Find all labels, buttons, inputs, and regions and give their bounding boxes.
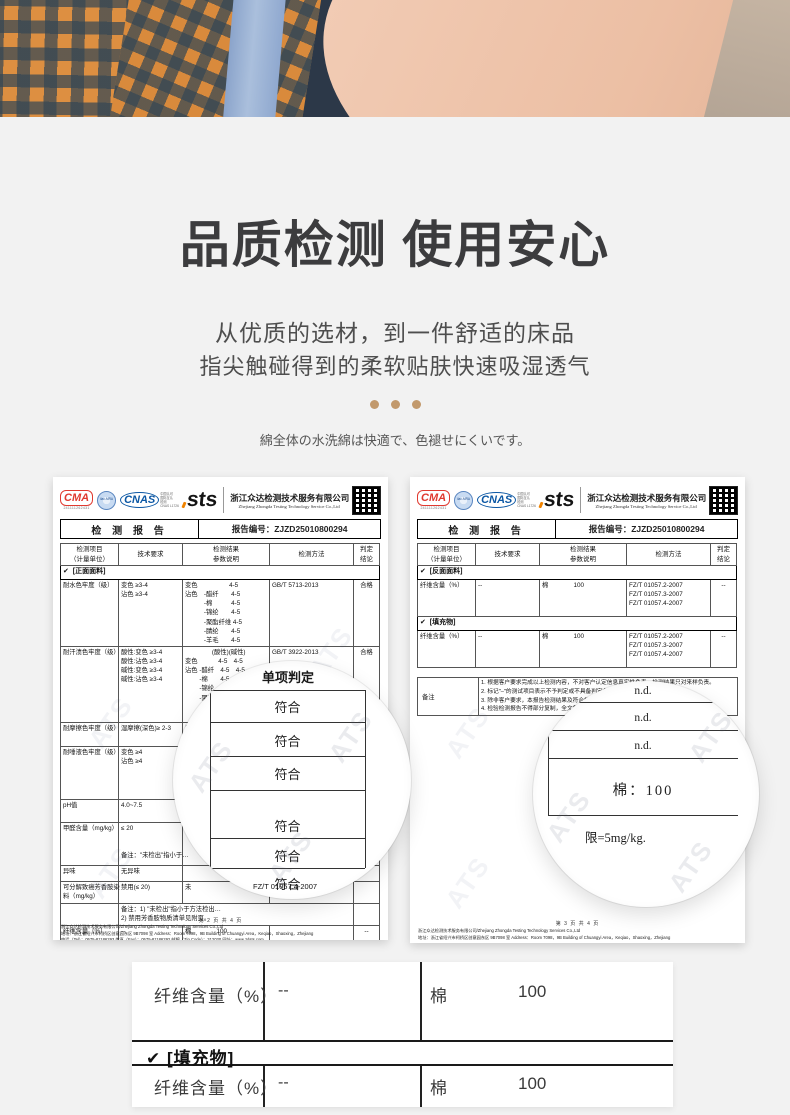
- tech-requirement-value: --: [278, 1074, 289, 1092]
- table-line: [132, 1040, 673, 1042]
- divider: [580, 487, 581, 513]
- fiber-content-label: 纤维含量（%）: [154, 982, 278, 1007]
- blue-fabric: [222, 0, 287, 117]
- section-label: ✔ [填充物]: [418, 617, 737, 631]
- japanese-note: 綿全体の水洗綿は快適で、色褪せにくいです。: [0, 430, 790, 449]
- subtitle-line2: 指尖触碰得到的柔软贴肤快速吸湿透气: [0, 349, 790, 381]
- table-cell: 耐水色牢度（级）: [61, 580, 119, 647]
- verdict-value: 符合: [210, 731, 365, 750]
- table-cell: 耐汗渍色牢度（级）: [61, 646, 119, 722]
- table-line: [210, 722, 365, 723]
- table-cell: 无异味: [119, 865, 183, 881]
- divider: [223, 487, 224, 513]
- test-results-table: 检测项目 （计量单位）技术要求检测结果 参数说明检测方法判定 结论✔ [反面面料…: [417, 543, 737, 668]
- ilac-mra-logo: ilac-MRA: [97, 491, 116, 510]
- table-cell: 纤维含量（%）: [418, 631, 476, 668]
- sts-logo: sts: [539, 488, 576, 512]
- column-header: 技术要求: [476, 544, 540, 566]
- table-cell: 棉 100: [540, 580, 627, 617]
- column-header: 技术要求: [119, 544, 183, 566]
- table-cell: 变色 4-5 沾色 -醋纤 4-5 -棉 4-5 -锦纶 4-5 -聚酯纤维 4…: [183, 580, 270, 647]
- table-cell: 湿摩擦(深色)≥ 2-3: [119, 722, 183, 746]
- column-header: 检测方法: [627, 544, 711, 566]
- table-cell: 禁用(≤ 20): [119, 881, 183, 903]
- table-line: [210, 756, 365, 757]
- qr-code: [352, 486, 381, 515]
- report-header-bar: 检 测 报 告 报告编号：ZJZD25010800294: [417, 519, 738, 539]
- table-cell: 纤维含量（%）: [418, 580, 476, 617]
- table-cell: FZ/T 01057.2-2007 FZ/T 01057.3-2007 FZ/T…: [627, 580, 711, 617]
- table-line: [420, 962, 422, 1040]
- verdict-value: 符合: [210, 697, 365, 716]
- table-cell: GB/T 5713-2013: [270, 580, 354, 647]
- company-name: 浙江众达检测技术服务有限公司 Zhejiang Zhongda Testing …: [587, 492, 705, 509]
- table-line: [210, 868, 365, 869]
- verdict-cell: --: [711, 631, 737, 668]
- column-header: 判定 结论: [354, 544, 380, 566]
- cma-logo: CMA 241111262431: [417, 490, 450, 510]
- remarks-label: 备注: [418, 678, 479, 715]
- fiber-value: 100: [518, 982, 546, 1002]
- table-line: [548, 702, 738, 703]
- verdict-value: 符合: [210, 846, 365, 865]
- table-cell: 棉 100: [540, 631, 627, 668]
- column-header: 检测结果 参数说明: [183, 544, 270, 566]
- table-cell: 甲醛含量（mg/kg）: [61, 822, 119, 865]
- table-cell: FZ/T 01057.2-2007 FZ/T 01057.3-2007 FZ/T…: [627, 631, 711, 668]
- table-row: 纤维含量（%）--棉 100FZ/T 01057.2-2007 FZ/T 010…: [418, 631, 737, 668]
- table-cell: pH值: [61, 799, 119, 822]
- section-label: ✔ [反面面料]: [418, 566, 737, 580]
- report-header-bar: 检 测 报 告 报告编号：ZJZD25010800294: [60, 519, 381, 539]
- magnifier-circle-right: n.d.n.d.n.d.棉：100 限=5mg/kg. ATS ATS ATS: [533, 681, 759, 907]
- table-cell: 异味: [61, 865, 119, 881]
- table-row: 耐水色牢度（级）变色 ≥3-4 沾色 ≥3-4变色 4-5 沾色 -醋纤 4-5…: [61, 580, 380, 647]
- cma-logo: CMA 241111262431: [60, 490, 93, 510]
- column-header: 检测项目 （计量单位）: [418, 544, 476, 566]
- dot-icon: [370, 400, 379, 409]
- table-cell: ≤ 20 备注："未检出"指小于…: [119, 822, 183, 865]
- table-line: [210, 790, 365, 791]
- cnas-logo: CNAS 中国认可 国际互认 检测 CNAS L1726: [120, 492, 179, 508]
- section-label: ✔ [正面面料]: [61, 566, 380, 580]
- plaid-fabric-fold: [101, 0, 325, 117]
- table-cell: --: [476, 631, 540, 668]
- zoomed-table-card: 纤维含量（%） -- 棉 100 ✔ [填充物] 纤维含量（%） -- 棉 10…: [132, 962, 673, 1107]
- table-cell: 耐唾液色牢度（级）: [61, 746, 119, 799]
- table-row: 纤维含量（%）--棉 100FZ/T 01057.2-2007 FZ/T 010…: [418, 580, 737, 617]
- table-line: [210, 690, 365, 691]
- table-line: [420, 1064, 422, 1107]
- table-line: [548, 730, 738, 731]
- table-cell: 耐摩擦色牢度（级）: [61, 722, 119, 746]
- table-cell: 变色 ≥3-4 沾色 ≥3-4: [119, 580, 183, 647]
- divider-dots: [0, 396, 790, 414]
- table-cell: 酸性:变色 ≥3-4 酸性:沾色 ≥3-4 碱性:变色 ≥3-4 碱性:沾色 ≥…: [119, 646, 183, 722]
- company-name: 浙江众达检测技术服务有限公司 Zhejiang Zhongda Testing …: [230, 492, 348, 509]
- magnified-method: FZ/T 01057.4-2007: [253, 882, 317, 891]
- verdict-value: 符合: [210, 816, 365, 835]
- magnifier-circle-left: 单项判定 符合符合符合符合符合符合 FZ/T 01057.4-2007 ATS …: [173, 661, 411, 899]
- table-row: ✔ [正面面料]: [61, 566, 380, 580]
- table-header-row: 检测项目 （计量单位）技术要求检测结果 参数说明检测方法判定 结论: [418, 544, 737, 566]
- table-header-row: 检测项目 （计量单位）技术要求检测结果 参数说明检测方法判定 结论: [61, 544, 380, 566]
- table-line: [210, 838, 365, 839]
- sts-logo: sts: [182, 488, 219, 512]
- result-value: n.d.: [548, 712, 738, 724]
- subtitle-line1: 从优质的选材，到一件舒适的床品: [0, 314, 790, 348]
- page-title: 品质检测 使用安心: [0, 205, 790, 277]
- column-header: 检测方法: [270, 544, 354, 566]
- cnas-logo: CNAS 中国认可 国际互认 检测 CNAS L1726: [477, 492, 536, 508]
- table-cell: --: [476, 580, 540, 617]
- qr-code: [709, 486, 738, 515]
- dot-icon: [412, 400, 421, 409]
- certification-logo-row: CMA 241111262431 ilac-MRA CNAS 中国认可 国际互认…: [417, 484, 738, 516]
- result-value: n.d.: [548, 685, 738, 697]
- tech-requirement-value: --: [278, 982, 289, 1000]
- watermark: ATS: [439, 851, 497, 915]
- hero-photo: [0, 0, 790, 117]
- table-row: ✔ [填充物]: [418, 617, 737, 631]
- result-value: n.d.: [548, 740, 738, 752]
- verdict-value: 符合: [210, 764, 365, 783]
- column-header: 判定 结论: [711, 544, 737, 566]
- table-cell: 4.0~7.5: [119, 799, 183, 822]
- fiber-value: 100: [518, 1074, 546, 1094]
- verdict-cell: --: [711, 580, 737, 617]
- page: 品质检测 使用安心 从优质的选材，到一件舒适的床品 指尖触碰得到的柔软贴肤快速吸…: [0, 0, 790, 1115]
- verdict-cell: 合格: [354, 580, 380, 647]
- fiber-content-label: 纤维含量（%）: [154, 1074, 278, 1099]
- column-header: 检测结果 参数说明: [540, 544, 627, 566]
- ilac-mra-logo: ilac-MRA: [454, 491, 473, 510]
- certification-logo-row: CMA 241111262431 ilac-MRA CNAS 中国认可 国际互认…: [60, 484, 381, 516]
- table-row: ✔ [反面面料]: [418, 566, 737, 580]
- divider: [545, 667, 607, 668]
- fiber-name: 棉: [430, 982, 447, 1007]
- report-footer: 浙江众达检测技术服务有限公司/Zhejiang Zhongda Testing …: [418, 928, 739, 941]
- table-line: [548, 815, 738, 816]
- report-footer: 浙江众达检测技术服务有限公司/Zhejiang Zhongda Testing …: [61, 924, 382, 940]
- table-line: [548, 758, 738, 759]
- result-value: 棉：100: [548, 779, 738, 800]
- table-line: [365, 690, 366, 868]
- page-number: 第 3 页 共 4 页: [410, 920, 745, 927]
- page-number: 第 2 页 共 4 页: [53, 917, 388, 924]
- fiber-name: 棉: [430, 1074, 447, 1099]
- column-header: 检测项目 （计量单位）: [61, 544, 119, 566]
- filling-section-label: ✔ [填充物]: [146, 1044, 234, 1069]
- magnified-column-header: 单项判定: [213, 667, 363, 686]
- dot-icon: [391, 400, 400, 409]
- table-cell: 可分解致癌芳香胺染 料（mg/kg）: [61, 881, 119, 903]
- detection-limit-note: 限=5mg/kg.: [585, 827, 646, 846]
